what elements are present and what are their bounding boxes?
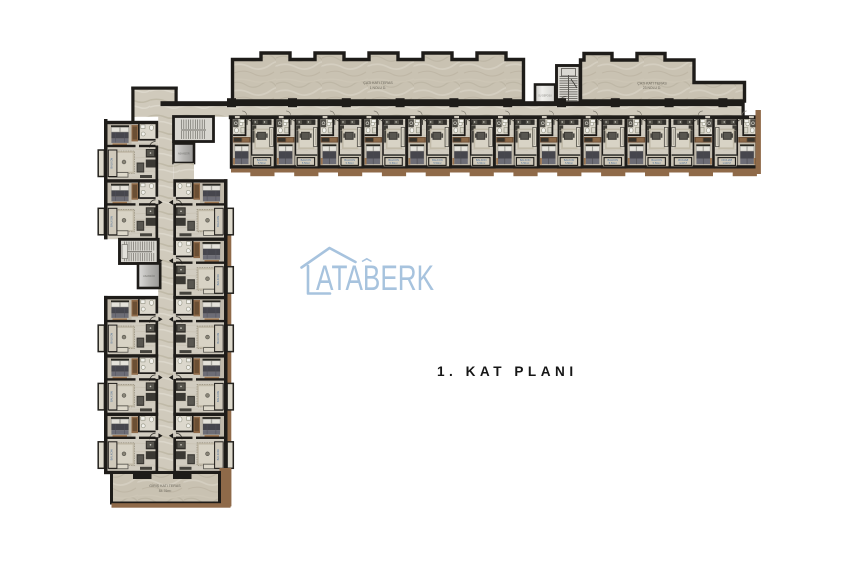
svg-text:5.50m²: 5.50m²	[433, 161, 441, 165]
svg-text:84.76m²: 84.76m²	[159, 489, 172, 493]
svg-text:5.50m²: 5.50m²	[679, 161, 687, 165]
svg-text:BALKON: BALKON	[216, 391, 220, 402]
svg-text:5.50m²: 5.50m²	[653, 161, 661, 165]
svg-text:23 NOLU D.: 23 NOLU D.	[643, 86, 662, 90]
svg-text:5.50m²: 5.50m²	[521, 161, 529, 165]
svg-text:BALKON: BALKON	[110, 449, 114, 460]
svg-text:ASANSÖR: ASANSÖR	[178, 153, 190, 156]
svg-text:ATABERK: ATABERK	[316, 258, 434, 298]
svg-text:ÇATI KATI TERAS: ÇATI KATI TERAS	[637, 82, 667, 86]
svg-text:ASANSÖR: ASANSÖR	[143, 275, 155, 278]
svg-text:5.50m²: 5.50m²	[723, 161, 731, 165]
svg-text:BALKON: BALKON	[110, 216, 114, 227]
svg-text:GİRİŞ KATI TERAS: GİRİŞ KATI TERAS	[149, 483, 181, 488]
svg-text:5.50m²: 5.50m²	[390, 161, 398, 165]
svg-text:ÇATI KATI TERAS: ÇATI KATI TERAS	[363, 81, 393, 85]
svg-text:5.50m²: 5.50m²	[477, 161, 485, 165]
svg-text:5.50m²: 5.50m²	[346, 161, 354, 165]
svg-text:5.50m²: 5.50m²	[258, 161, 266, 165]
svg-text:BALKON: BALKON	[110, 333, 114, 344]
svg-text:BALKON: BALKON	[110, 391, 114, 402]
svg-text:BALKON: BALKON	[216, 216, 220, 227]
svg-text:BALKON: BALKON	[216, 449, 220, 460]
svg-text:5.50m²: 5.50m²	[609, 161, 617, 165]
svg-text:5.50m²: 5.50m²	[565, 161, 573, 165]
svg-text:BALKON: BALKON	[216, 333, 220, 344]
svg-text:SU DEPOSU: SU DEPOSU	[538, 96, 552, 98]
svg-text:1 NOLU D.: 1 NOLU D.	[370, 86, 387, 90]
svg-text:5.50m²: 5.50m²	[302, 161, 310, 165]
svg-text:1. KAT PLANI: 1. KAT PLANI	[437, 364, 578, 379]
svg-text:BALKON: BALKON	[216, 274, 220, 285]
svg-text:BALKON: BALKON	[110, 158, 114, 169]
